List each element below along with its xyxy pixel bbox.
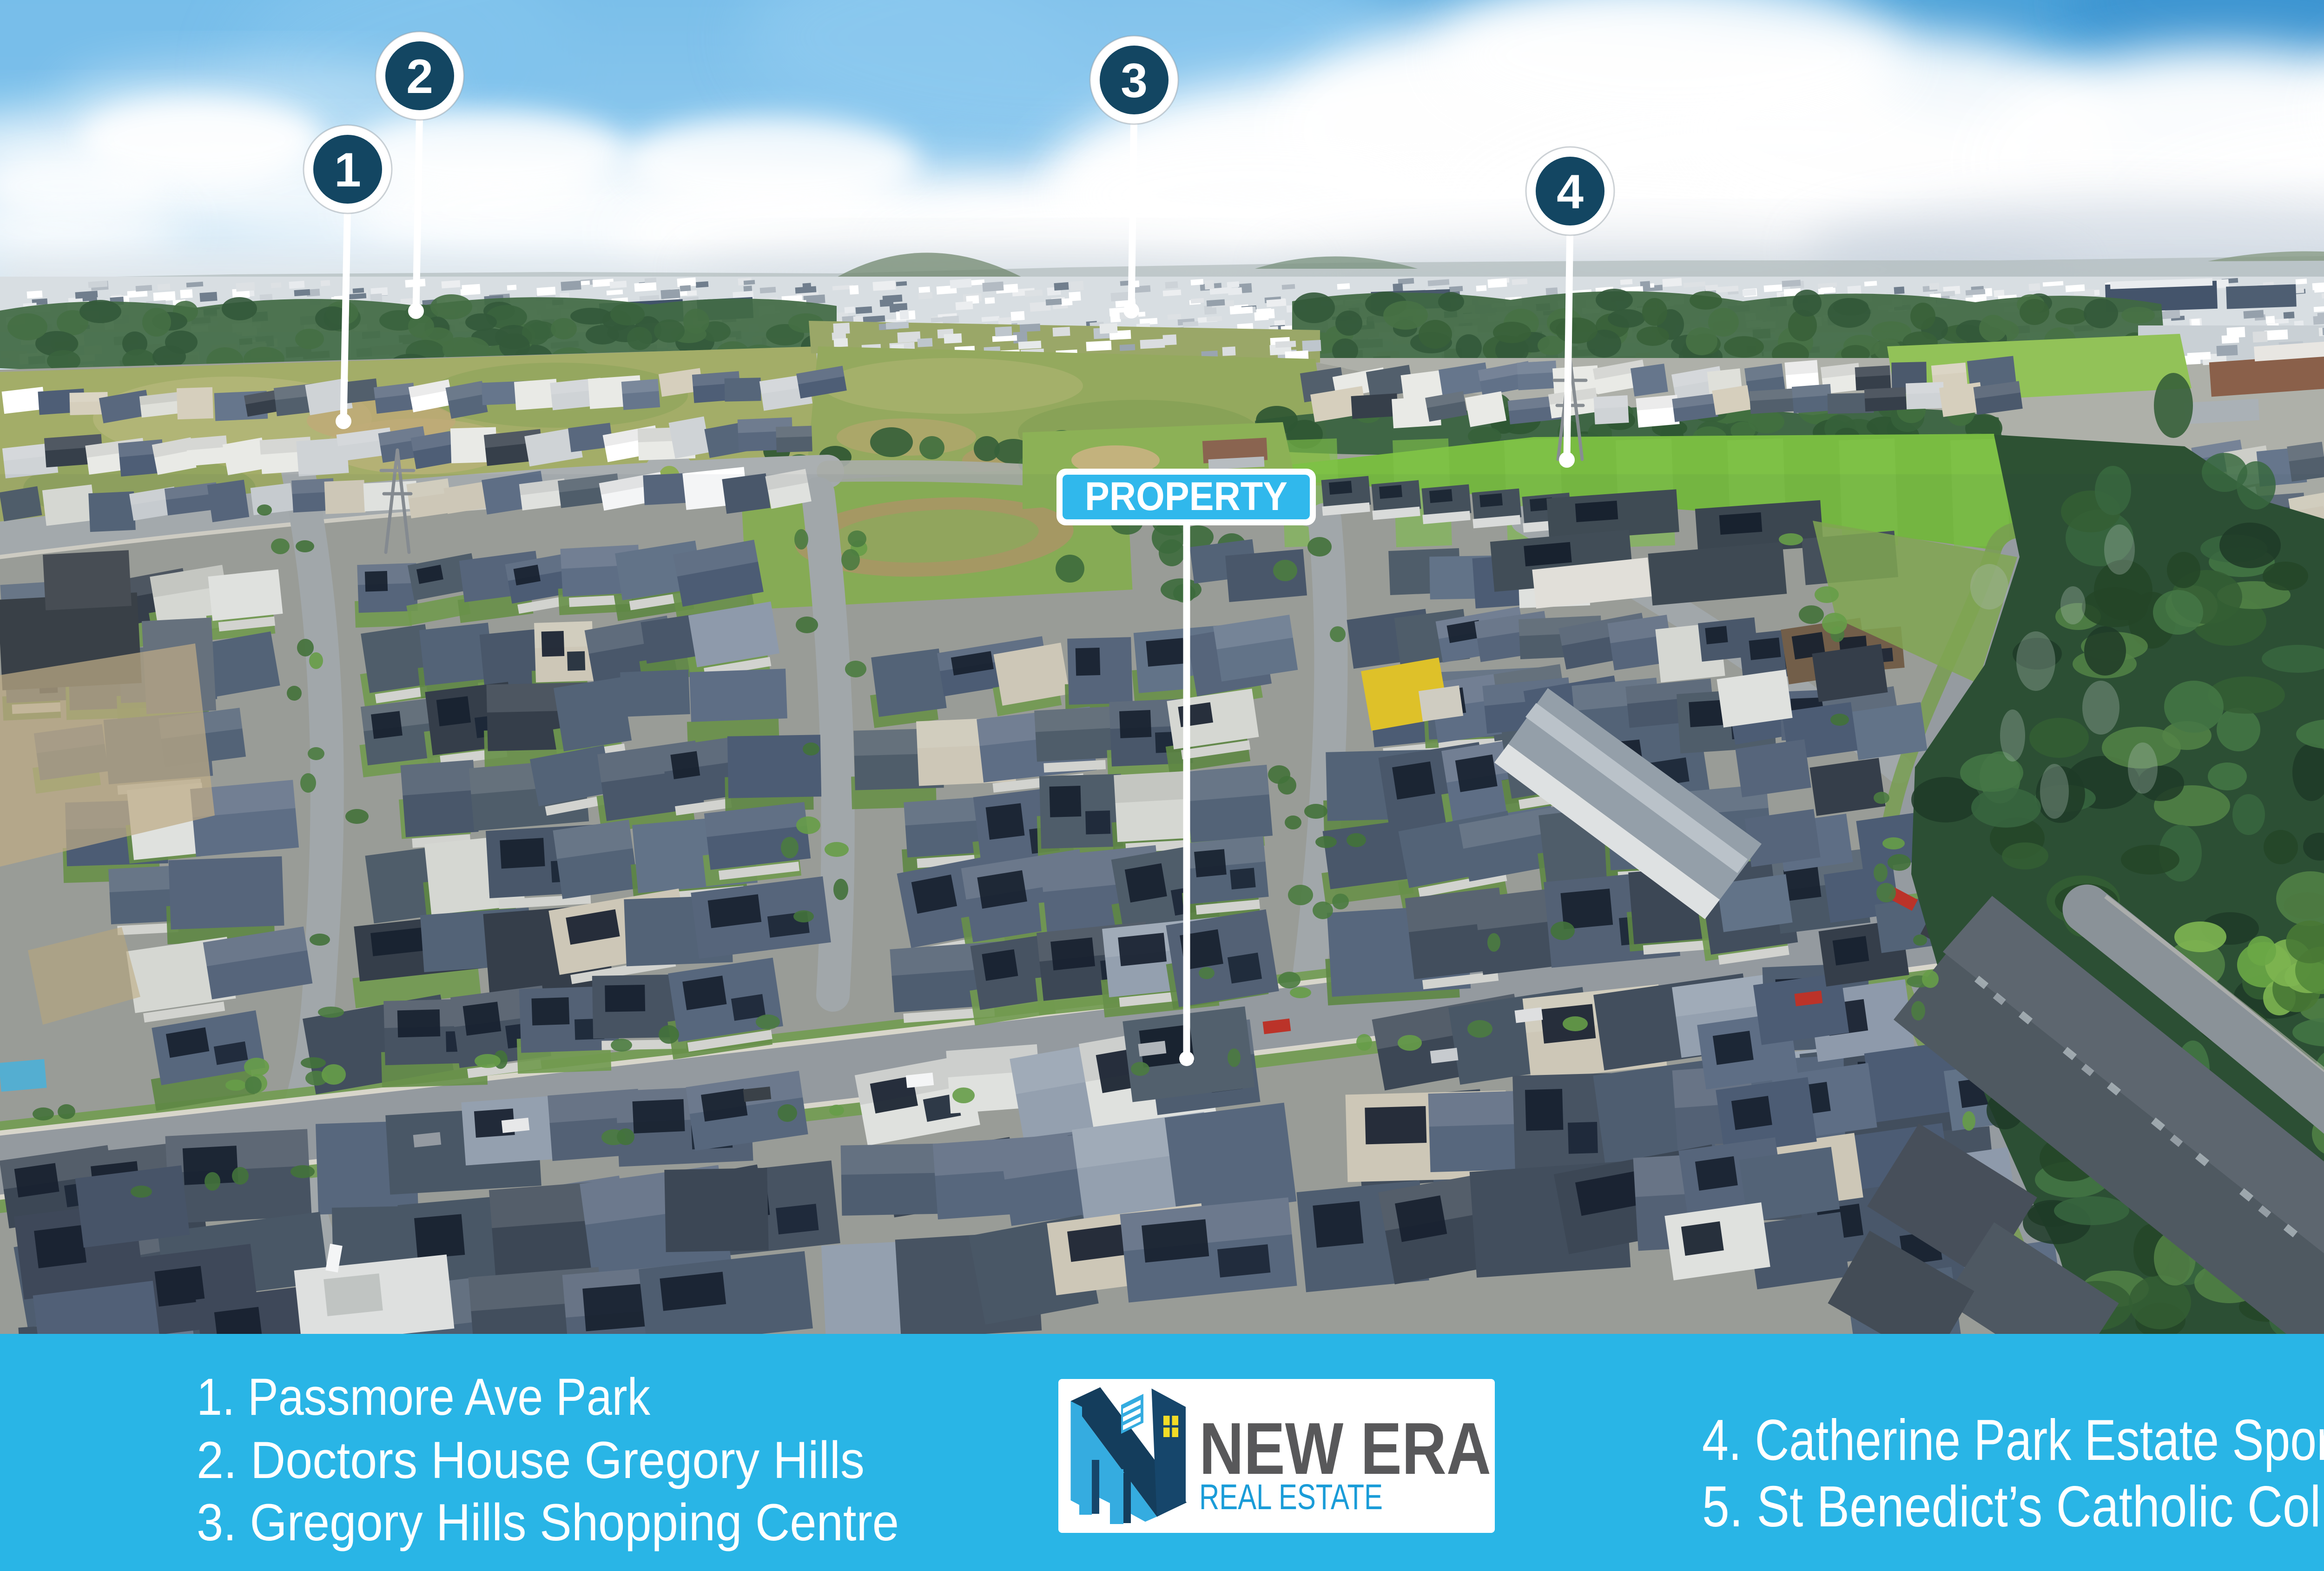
svg-text:5. St Benedict’s Catholic Coll: 5. St Benedict’s Catholic College bbox=[1702, 1475, 2324, 1539]
svg-text:2: 2 bbox=[406, 50, 433, 104]
svg-text:4. Catherine Park Estate Sport: 4. Catherine Park Estate Sports Field bbox=[1702, 1408, 2324, 1472]
svg-text:REAL ESTATE: REAL ESTATE bbox=[1199, 1477, 1383, 1517]
svg-text:4: 4 bbox=[1557, 165, 1584, 219]
svg-text:3. Gregory Hills Shopping Cent: 3. Gregory Hills Shopping Centre bbox=[197, 1493, 899, 1551]
svg-text:1: 1 bbox=[334, 143, 361, 197]
svg-text:1. Passmore Ave Park: 1. Passmore Ave Park bbox=[197, 1368, 651, 1426]
svg-text:2. Doctors House Gregory Hills: 2. Doctors House Gregory Hills bbox=[197, 1431, 865, 1489]
svg-text:3: 3 bbox=[1121, 54, 1148, 108]
svg-text:PROPERTY: PROPERTY bbox=[1085, 474, 1287, 519]
